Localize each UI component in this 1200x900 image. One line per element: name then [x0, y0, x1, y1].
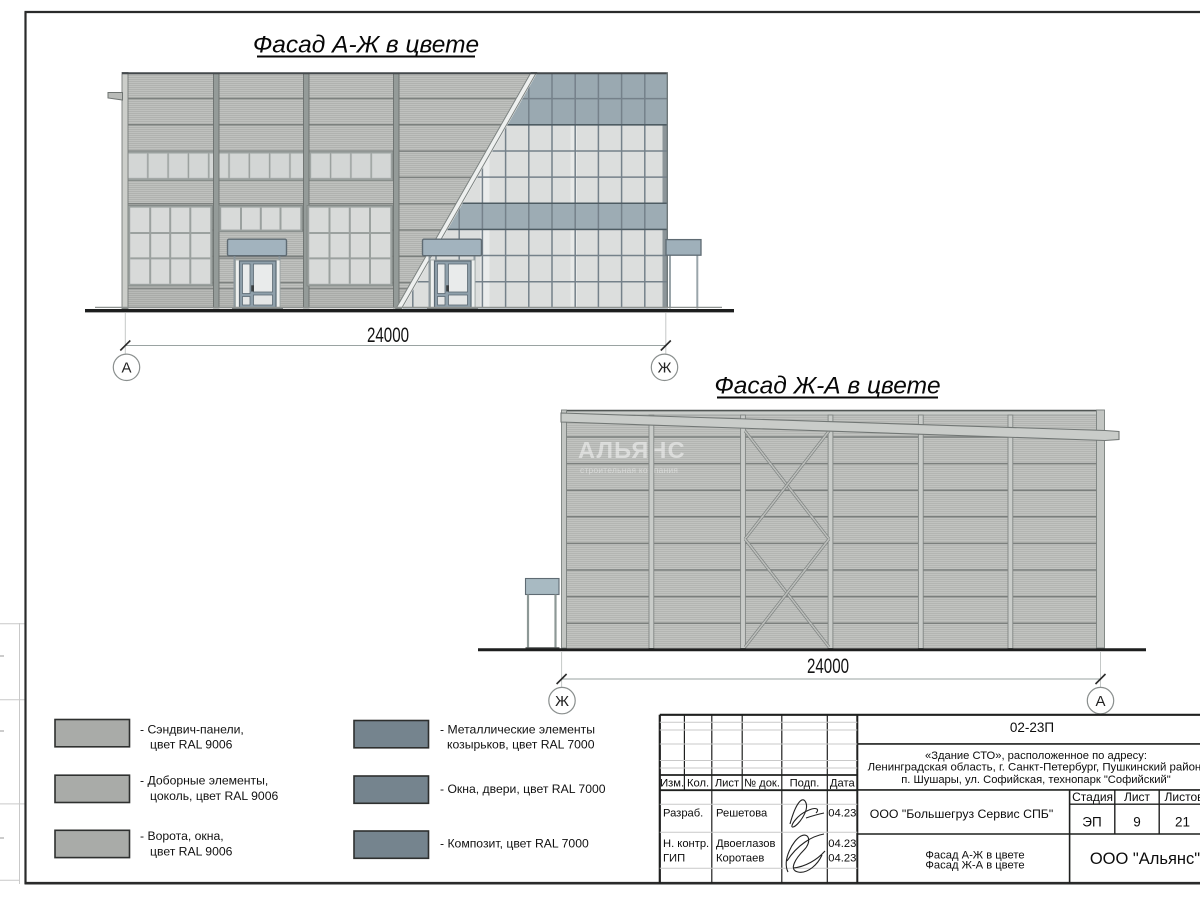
svg-text:Н. контр.: Н. контр. [663, 838, 709, 850]
svg-text:козырьков, цвет RAL 7000: козырьков, цвет RAL 7000 [447, 738, 595, 752]
svg-text:- Металлические элементы: - Металлические элементы [440, 723, 595, 737]
svg-text:Ж: Ж [658, 360, 672, 377]
svg-text:24000: 24000 [807, 655, 849, 678]
svg-text:Коротаев: Коротаев [716, 853, 764, 865]
svg-text:цоколь, цвет RAL 9006: цоколь, цвет RAL 9006 [150, 789, 278, 803]
svg-text:24000: 24000 [367, 324, 409, 347]
svg-text:Стадия: Стадия [1072, 790, 1113, 804]
svg-text:ООО "Альянс": ООО "Альянс" [1090, 850, 1200, 868]
svg-text:04.23: 04.23 [828, 808, 856, 820]
svg-text:Двоеглазов: Двоеглазов [716, 838, 776, 850]
svg-text:Кол.: Кол. [687, 778, 709, 790]
svg-text:- Композит, цвет RAL 7000: - Композит, цвет RAL 7000 [440, 837, 589, 851]
svg-text:Фасад Ж-А в цвете: Фасад Ж-А в цвете [714, 373, 940, 400]
svg-text:21: 21 [1175, 815, 1190, 830]
svg-text:Листов: Листов [1165, 790, 1200, 804]
svg-text:9: 9 [1133, 815, 1141, 830]
svg-text:№ док.: № док. [744, 778, 780, 790]
svg-text:А: А [1095, 693, 1105, 710]
svg-text:ООО "Большегруз Сервис СПБ": ООО "Большегруз Сервис СПБ" [870, 807, 1053, 821]
svg-text:04.23: 04.23 [828, 853, 856, 865]
svg-text:строительная компания: строительная компания [580, 465, 678, 475]
svg-text:- Ворота, окна,: - Ворота, окна, [140, 829, 224, 843]
svg-text:Фасад Ж-А в цвете: Фасад Ж-А в цвете [925, 860, 1024, 872]
svg-text:А: А [121, 360, 131, 377]
svg-text:Решетова: Решетова [716, 808, 768, 820]
svg-text:«Здание СТО», расположенное по: «Здание СТО», расположенное по адресу: [925, 750, 1147, 762]
svg-text:02-23П: 02-23П [1010, 720, 1054, 735]
svg-text:ЭП: ЭП [1082, 815, 1101, 830]
svg-text:Разраб.: Разраб. [663, 808, 703, 820]
svg-text:п. Шушары, ул. Софийская, техн: п. Шушары, ул. Софийская, технопарк "Соф… [901, 774, 1171, 786]
svg-text:Лист: Лист [1124, 790, 1151, 804]
svg-text:Лист: Лист [715, 778, 739, 790]
svg-text:- Сэндвич-панели,: - Сэндвич-панели, [140, 723, 244, 737]
svg-text:- Доборные элементы,: - Доборные элементы, [140, 774, 268, 788]
svg-text:04.23: 04.23 [828, 838, 856, 850]
svg-text:Ленинградская область, г. Санк: Ленинградская область, г. Санкт-Петербур… [868, 762, 1200, 774]
svg-text:Фасад А-Ж в цвете: Фасад А-Ж в цвете [253, 32, 479, 59]
svg-text:- Окна, двери, цвет RAL 7000: - Окна, двери, цвет RAL 7000 [440, 782, 606, 796]
svg-text:цвет RAL 9006: цвет RAL 9006 [150, 845, 233, 859]
svg-text:Изм.: Изм. [660, 778, 684, 790]
svg-text:Подп.: Подп. [790, 778, 820, 790]
svg-text:АЛЬЯНС: АЛЬЯНС [578, 437, 686, 463]
svg-text:Ж: Ж [555, 693, 569, 710]
svg-text:Дата: Дата [830, 778, 856, 790]
svg-text:ГИП: ГИП [663, 853, 685, 865]
svg-text:цвет RAL 9006: цвет RAL 9006 [150, 738, 233, 752]
